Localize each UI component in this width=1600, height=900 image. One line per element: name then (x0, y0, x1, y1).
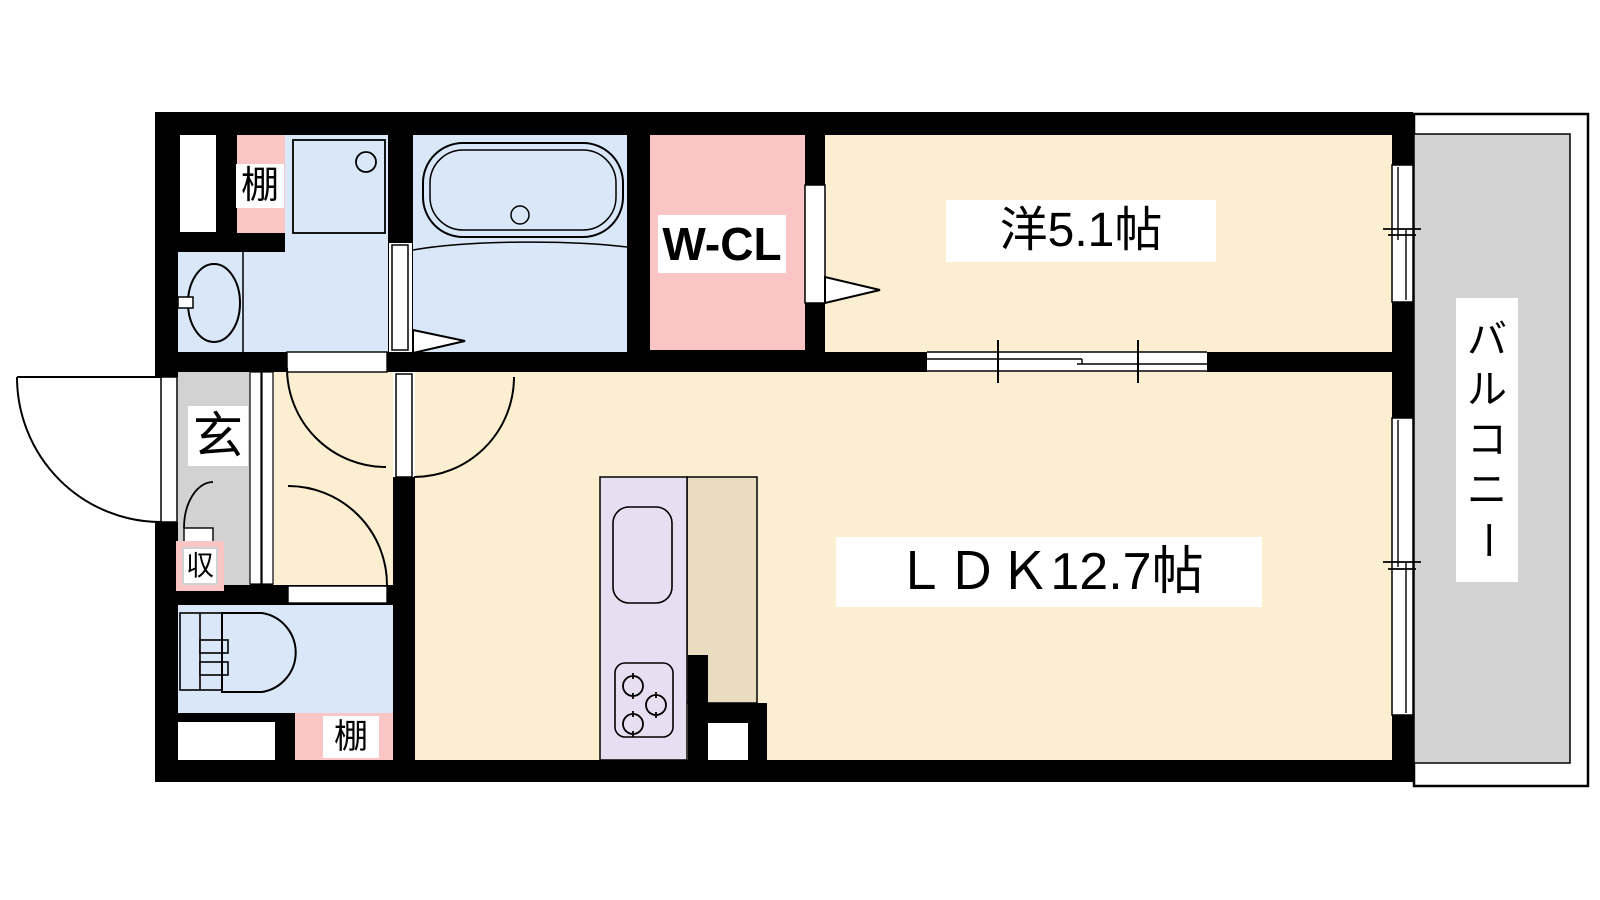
balcony-label: バルコニー (1456, 298, 1518, 582)
entrance-label: 玄 (188, 406, 248, 466)
shelf-top-label: 棚 (236, 164, 284, 208)
kitchen-end-pillar (708, 723, 748, 760)
wcl-door-leaf (805, 185, 825, 303)
bathroom-door-leaf (392, 245, 408, 350)
bedroom-label: 洋5.1帖 (946, 200, 1216, 262)
shelf-bottom-label: 棚 (323, 716, 379, 758)
under-stair-void (178, 722, 275, 760)
entrance-step-strip (250, 372, 261, 584)
floorplan-page: 棚 W-CL 洋5.1帖 ＬＤＫ12.7帖 玄 収 棚 バルコニー (0, 0, 1600, 900)
toilet-floor (178, 605, 393, 713)
washroom-door-opening (287, 352, 387, 372)
service-shaft (180, 135, 216, 232)
entrance-door-swing-arc (17, 377, 161, 522)
toilet-flush-handle (200, 640, 228, 653)
washbasin-faucet (178, 297, 193, 308)
entrance-door-leaf (161, 377, 177, 522)
toilet-door-leaf (288, 586, 387, 603)
entrance-step-strip (262, 372, 273, 584)
ldk-label: ＬＤＫ12.7帖 (836, 537, 1262, 607)
hall-floor (273, 372, 393, 585)
toilet-flush-handle (200, 662, 228, 675)
walk-in-closet-label: W-CL (658, 215, 786, 273)
ldk-door-leaf (396, 374, 412, 477)
entrance-storage-label: 収 (184, 549, 216, 583)
